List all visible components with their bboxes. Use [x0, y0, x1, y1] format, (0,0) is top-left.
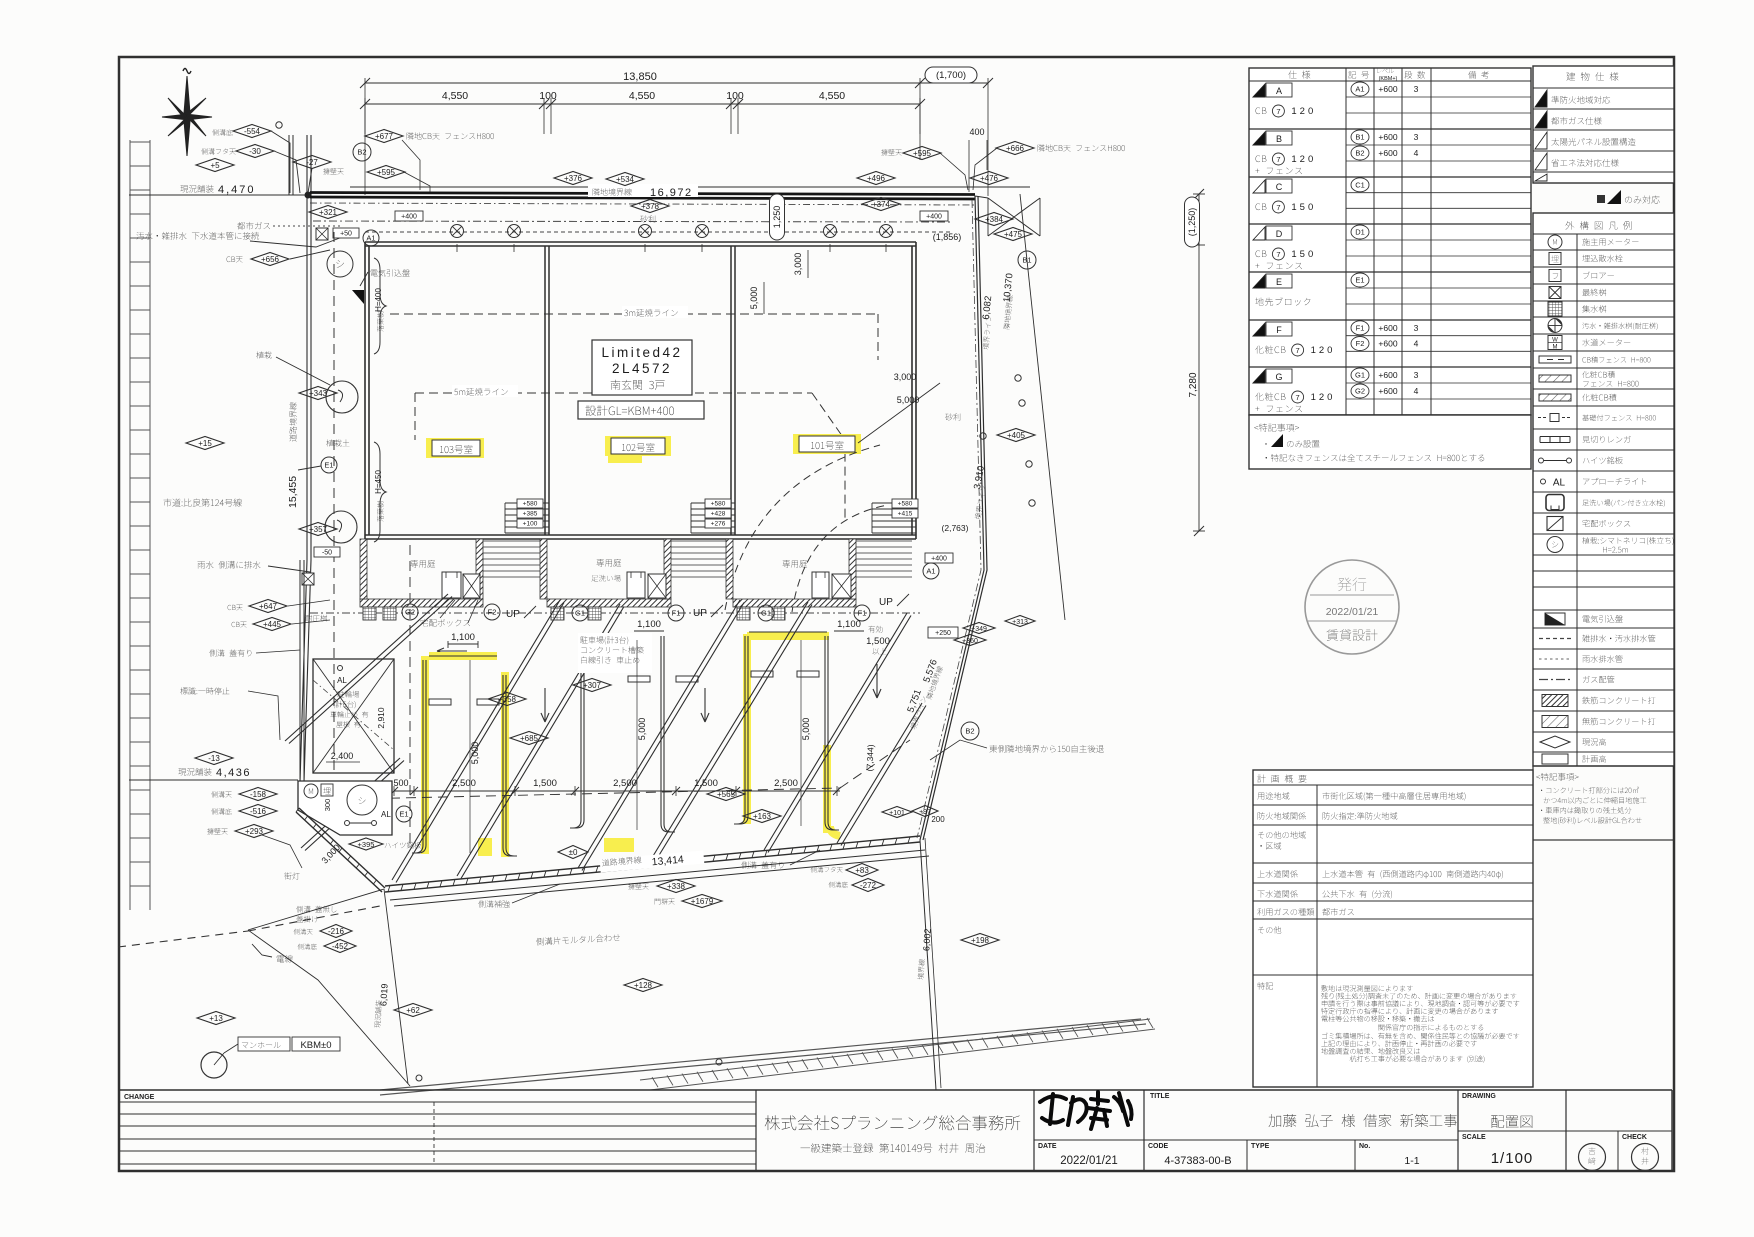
svg-text:-158: -158 — [250, 790, 267, 799]
svg-text:7: 7 — [1276, 155, 1280, 164]
svg-text:+580: +580 — [523, 501, 538, 508]
svg-text:+321: +321 — [319, 208, 338, 217]
svg-text:+83: +83 — [855, 866, 869, 875]
svg-text:+250: +250 — [935, 630, 951, 637]
svg-text:-452: -452 — [332, 942, 349, 951]
svg-text:F2: F2 — [488, 608, 497, 617]
svg-text:5,000: 5,000 — [470, 742, 480, 765]
svg-text:+101: +101 — [889, 810, 905, 817]
svg-text:±0: ±0 — [569, 848, 578, 857]
svg-text:(1,700): (1,700) — [936, 70, 966, 81]
svg-text:TYPE: TYPE — [1251, 1143, 1270, 1150]
svg-text:UP: UP — [879, 597, 893, 608]
svg-text:5,000: 5,000 — [749, 287, 759, 310]
svg-text:G1: G1 — [1355, 371, 1365, 380]
svg-text:B2: B2 — [357, 148, 366, 157]
svg-text:C1: C1 — [1355, 181, 1365, 190]
svg-text:H=450: H=450 — [374, 470, 383, 494]
svg-text:G2: G2 — [1355, 387, 1365, 396]
svg-text:SCALE: SCALE — [1462, 1134, 1486, 1141]
svg-text:120: 120 — [1311, 392, 1336, 403]
svg-text:B1: B1 — [1355, 133, 1364, 142]
svg-text:16,972: 16,972 — [650, 187, 693, 199]
svg-text:+5: +5 — [210, 161, 220, 170]
svg-text:+395: +395 — [358, 840, 375, 849]
svg-text:4: 4 — [1414, 148, 1419, 158]
svg-text:120: 120 — [1311, 345, 1336, 356]
svg-text:UP: UP — [693, 608, 707, 619]
svg-text:A1: A1 — [926, 567, 935, 576]
svg-text:1,250: 1,250 — [772, 206, 782, 229]
svg-text:DATE: DATE — [1038, 1143, 1057, 1150]
svg-text:+97: +97 — [919, 809, 931, 816]
svg-text:-50: -50 — [322, 549, 332, 556]
svg-text:+476: +476 — [980, 174, 999, 183]
svg-text:13,850: 13,850 — [623, 71, 657, 83]
svg-text:+656: +656 — [261, 255, 280, 264]
svg-text:(2,763): (2,763) — [942, 523, 969, 533]
svg-text:+685: +685 — [520, 734, 539, 743]
svg-text:150: 150 — [1291, 249, 1316, 260]
svg-text:6,002: 6,002 — [921, 928, 933, 951]
svg-text:F2: F2 — [1356, 339, 1365, 348]
svg-text:400: 400 — [969, 127, 984, 137]
svg-text:4: 4 — [1414, 339, 1419, 349]
svg-text:D1: D1 — [1355, 228, 1365, 237]
svg-text:F: F — [1276, 325, 1282, 335]
svg-text:+128: +128 — [634, 981, 653, 990]
svg-text:120: 120 — [1291, 106, 1316, 117]
svg-text:M: M — [1553, 345, 1558, 351]
svg-text:H=400: H=400 — [374, 288, 383, 312]
svg-text:4-37383-00-B: 4-37383-00-B — [1164, 1155, 1231, 1167]
svg-text:F1: F1 — [1356, 324, 1365, 333]
svg-text:A1: A1 — [366, 234, 375, 243]
svg-text:2,500: 2,500 — [452, 778, 476, 789]
svg-text:+595: +595 — [913, 149, 932, 158]
svg-text:CODE: CODE — [1148, 1143, 1169, 1150]
svg-text:-554: -554 — [244, 127, 261, 136]
svg-text:4,550: 4,550 — [629, 90, 655, 102]
svg-text:G1: G1 — [575, 609, 585, 618]
svg-text:1,100: 1,100 — [637, 619, 661, 630]
svg-text:+378: +378 — [641, 202, 660, 211]
svg-text:5,000: 5,000 — [637, 718, 647, 741]
svg-text:7: 7 — [1296, 393, 1300, 402]
svg-text:+313: +313 — [1012, 619, 1028, 626]
svg-text:No.: No. — [1359, 1143, 1370, 1150]
svg-text:+400: +400 — [931, 555, 947, 562]
svg-text:100: 100 — [539, 90, 557, 102]
svg-text:KBM±0: KBM±0 — [300, 1040, 331, 1051]
svg-text:+475: +475 — [1004, 230, 1023, 239]
svg-text:+307: +307 — [583, 681, 602, 690]
svg-text:-516: -516 — [250, 807, 267, 816]
svg-text:300: 300 — [323, 799, 332, 812]
svg-text:3,000: 3,000 — [894, 372, 917, 382]
svg-text:+600: +600 — [1378, 386, 1397, 396]
svg-text:150: 150 — [1291, 202, 1316, 213]
svg-text:100: 100 — [726, 90, 744, 102]
svg-text:+534: +534 — [616, 175, 635, 184]
svg-text:3: 3 — [1414, 370, 1419, 380]
svg-text:4: 4 — [1414, 386, 1419, 396]
svg-text:(KBM+): (KBM+) — [1379, 76, 1398, 82]
svg-text:2022/01/21: 2022/01/21 — [1060, 1155, 1118, 1167]
svg-text:+400: +400 — [401, 213, 417, 220]
svg-text:+374: +374 — [872, 200, 891, 209]
svg-text:+376: +376 — [564, 174, 583, 183]
svg-text:AL: AL — [381, 810, 391, 819]
svg-text:+400: +400 — [926, 213, 942, 220]
svg-text:500: 500 — [393, 778, 408, 788]
svg-text:E1: E1 — [324, 461, 333, 470]
svg-text:+428: +428 — [711, 511, 726, 518]
svg-text:2L4572: 2L4572 — [612, 361, 672, 376]
svg-text:B1: B1 — [1022, 256, 1031, 265]
svg-text:+163: +163 — [753, 812, 772, 821]
svg-text:7: 7 — [1296, 346, 1300, 355]
svg-text:G: G — [1275, 372, 1282, 382]
svg-text:(1,856): (1,856) — [933, 232, 962, 242]
svg-text:+360: +360 — [962, 638, 978, 645]
svg-text:C: C — [1276, 182, 1283, 192]
svg-text:+13: +13 — [209, 1014, 223, 1023]
svg-text:200: 200 — [931, 815, 945, 824]
svg-text:+580: +580 — [711, 501, 726, 508]
svg-text:+415: +415 — [898, 511, 913, 518]
svg-text:+293: +293 — [245, 827, 264, 836]
svg-text:+600: +600 — [1378, 370, 1397, 380]
svg-text:15,455: 15,455 — [287, 476, 299, 508]
svg-text:1-1: 1-1 — [1404, 1155, 1419, 1167]
svg-text:+445: +445 — [263, 620, 282, 629]
svg-text:3: 3 — [1414, 84, 1419, 94]
svg-text:1,500: 1,500 — [866, 636, 890, 647]
svg-text:AL: AL — [337, 676, 347, 685]
svg-text:3,000: 3,000 — [793, 253, 803, 276]
svg-text:2,500: 2,500 — [774, 778, 798, 789]
svg-text:+343: +343 — [309, 389, 328, 398]
svg-text:+276: +276 — [711, 521, 726, 528]
svg-text:-272: -272 — [860, 881, 877, 890]
svg-text:5,000: 5,000 — [801, 718, 811, 741]
svg-text:TITLE: TITLE — [1150, 1093, 1170, 1100]
svg-text:E1: E1 — [1355, 276, 1364, 285]
svg-text:+677: +677 — [375, 132, 394, 141]
svg-text:E1: E1 — [399, 810, 408, 819]
svg-text:1,500: 1,500 — [533, 778, 557, 789]
svg-text:A: A — [1276, 86, 1282, 96]
svg-text:CHANGE: CHANGE — [124, 1094, 155, 1101]
svg-text:UP: UP — [506, 609, 520, 620]
svg-text:2022/01/21: 2022/01/21 — [1326, 606, 1379, 618]
svg-text:+198: +198 — [971, 936, 990, 945]
svg-text:AL: AL — [1553, 478, 1566, 489]
svg-text:+405: +405 — [1007, 431, 1026, 440]
svg-text:(1,250): (1,250) — [1187, 208, 1197, 237]
svg-text:E: E — [1276, 277, 1282, 287]
svg-text:+580: +580 — [898, 501, 913, 508]
svg-text:F1: F1 — [672, 609, 681, 618]
svg-text:1/100: 1/100 — [1491, 1150, 1534, 1167]
svg-text:+62: +62 — [406, 1006, 420, 1015]
svg-text:+385: +385 — [523, 511, 538, 518]
svg-text:2,500: 2,500 — [613, 778, 637, 789]
svg-text:+600: +600 — [1378, 84, 1397, 94]
svg-text:4,470: 4,470 — [218, 184, 256, 196]
svg-text:7: 7 — [1276, 203, 1280, 212]
svg-text:B: B — [1276, 134, 1282, 144]
svg-text:+15: +15 — [198, 439, 212, 448]
svg-text:1,100: 1,100 — [451, 632, 475, 643]
svg-text:G1: G1 — [761, 609, 771, 618]
svg-text:4,550: 4,550 — [442, 90, 468, 102]
svg-text:+647: +647 — [259, 602, 278, 611]
svg-text:+358: +358 — [498, 695, 517, 704]
svg-text:+50: +50 — [340, 230, 352, 237]
svg-text:-30: -30 — [249, 147, 261, 156]
svg-text:+666: +666 — [1006, 144, 1025, 153]
svg-text:-13: -13 — [208, 754, 220, 763]
svg-text:+600: +600 — [1378, 339, 1397, 349]
svg-text:+595: +595 — [377, 168, 396, 177]
svg-text:4,550: 4,550 — [819, 90, 845, 102]
svg-text:7: 7 — [1276, 107, 1280, 116]
svg-text:+600: +600 — [1378, 323, 1397, 333]
svg-text:+349: +349 — [971, 626, 987, 633]
svg-text:+496: +496 — [867, 174, 886, 183]
svg-text:5,000: 5,000 — [897, 395, 920, 405]
svg-text:B2: B2 — [1355, 149, 1364, 158]
svg-text:+100: +100 — [523, 521, 538, 528]
svg-text:D: D — [1276, 229, 1283, 239]
svg-text:F1: F1 — [858, 609, 867, 618]
svg-text:CHECK: CHECK — [1622, 1134, 1647, 1141]
svg-text:Limited42: Limited42 — [601, 345, 682, 360]
svg-text:2,400: 2,400 — [331, 751, 354, 761]
svg-text:+600: +600 — [1378, 132, 1397, 142]
svg-text:120: 120 — [1291, 154, 1316, 165]
svg-text:+600: +600 — [1378, 148, 1397, 158]
svg-text:+338: +338 — [667, 882, 686, 891]
svg-text:+384: +384 — [985, 215, 1004, 224]
svg-text:7,280: 7,280 — [1188, 372, 1199, 397]
svg-text:1,500: 1,500 — [694, 778, 718, 789]
svg-text:1,100: 1,100 — [837, 619, 861, 630]
svg-text:4,436: 4,436 — [216, 767, 251, 779]
svg-text:DRAWING: DRAWING — [1462, 1093, 1496, 1100]
svg-text:-27: -27 — [306, 158, 318, 167]
svg-text:(7,344): (7,344) — [864, 744, 875, 772]
svg-text:7: 7 — [1276, 250, 1280, 259]
svg-text:+357: +357 — [309, 525, 328, 534]
svg-text:A1: A1 — [1355, 85, 1364, 94]
svg-text:3: 3 — [1414, 323, 1419, 333]
svg-text:+1679: +1679 — [691, 897, 714, 906]
svg-text:B2: B2 — [965, 727, 974, 736]
svg-text:-216: -216 — [328, 927, 345, 936]
svg-text:3: 3 — [1414, 132, 1419, 142]
svg-text:2,910: 2,910 — [376, 707, 386, 729]
